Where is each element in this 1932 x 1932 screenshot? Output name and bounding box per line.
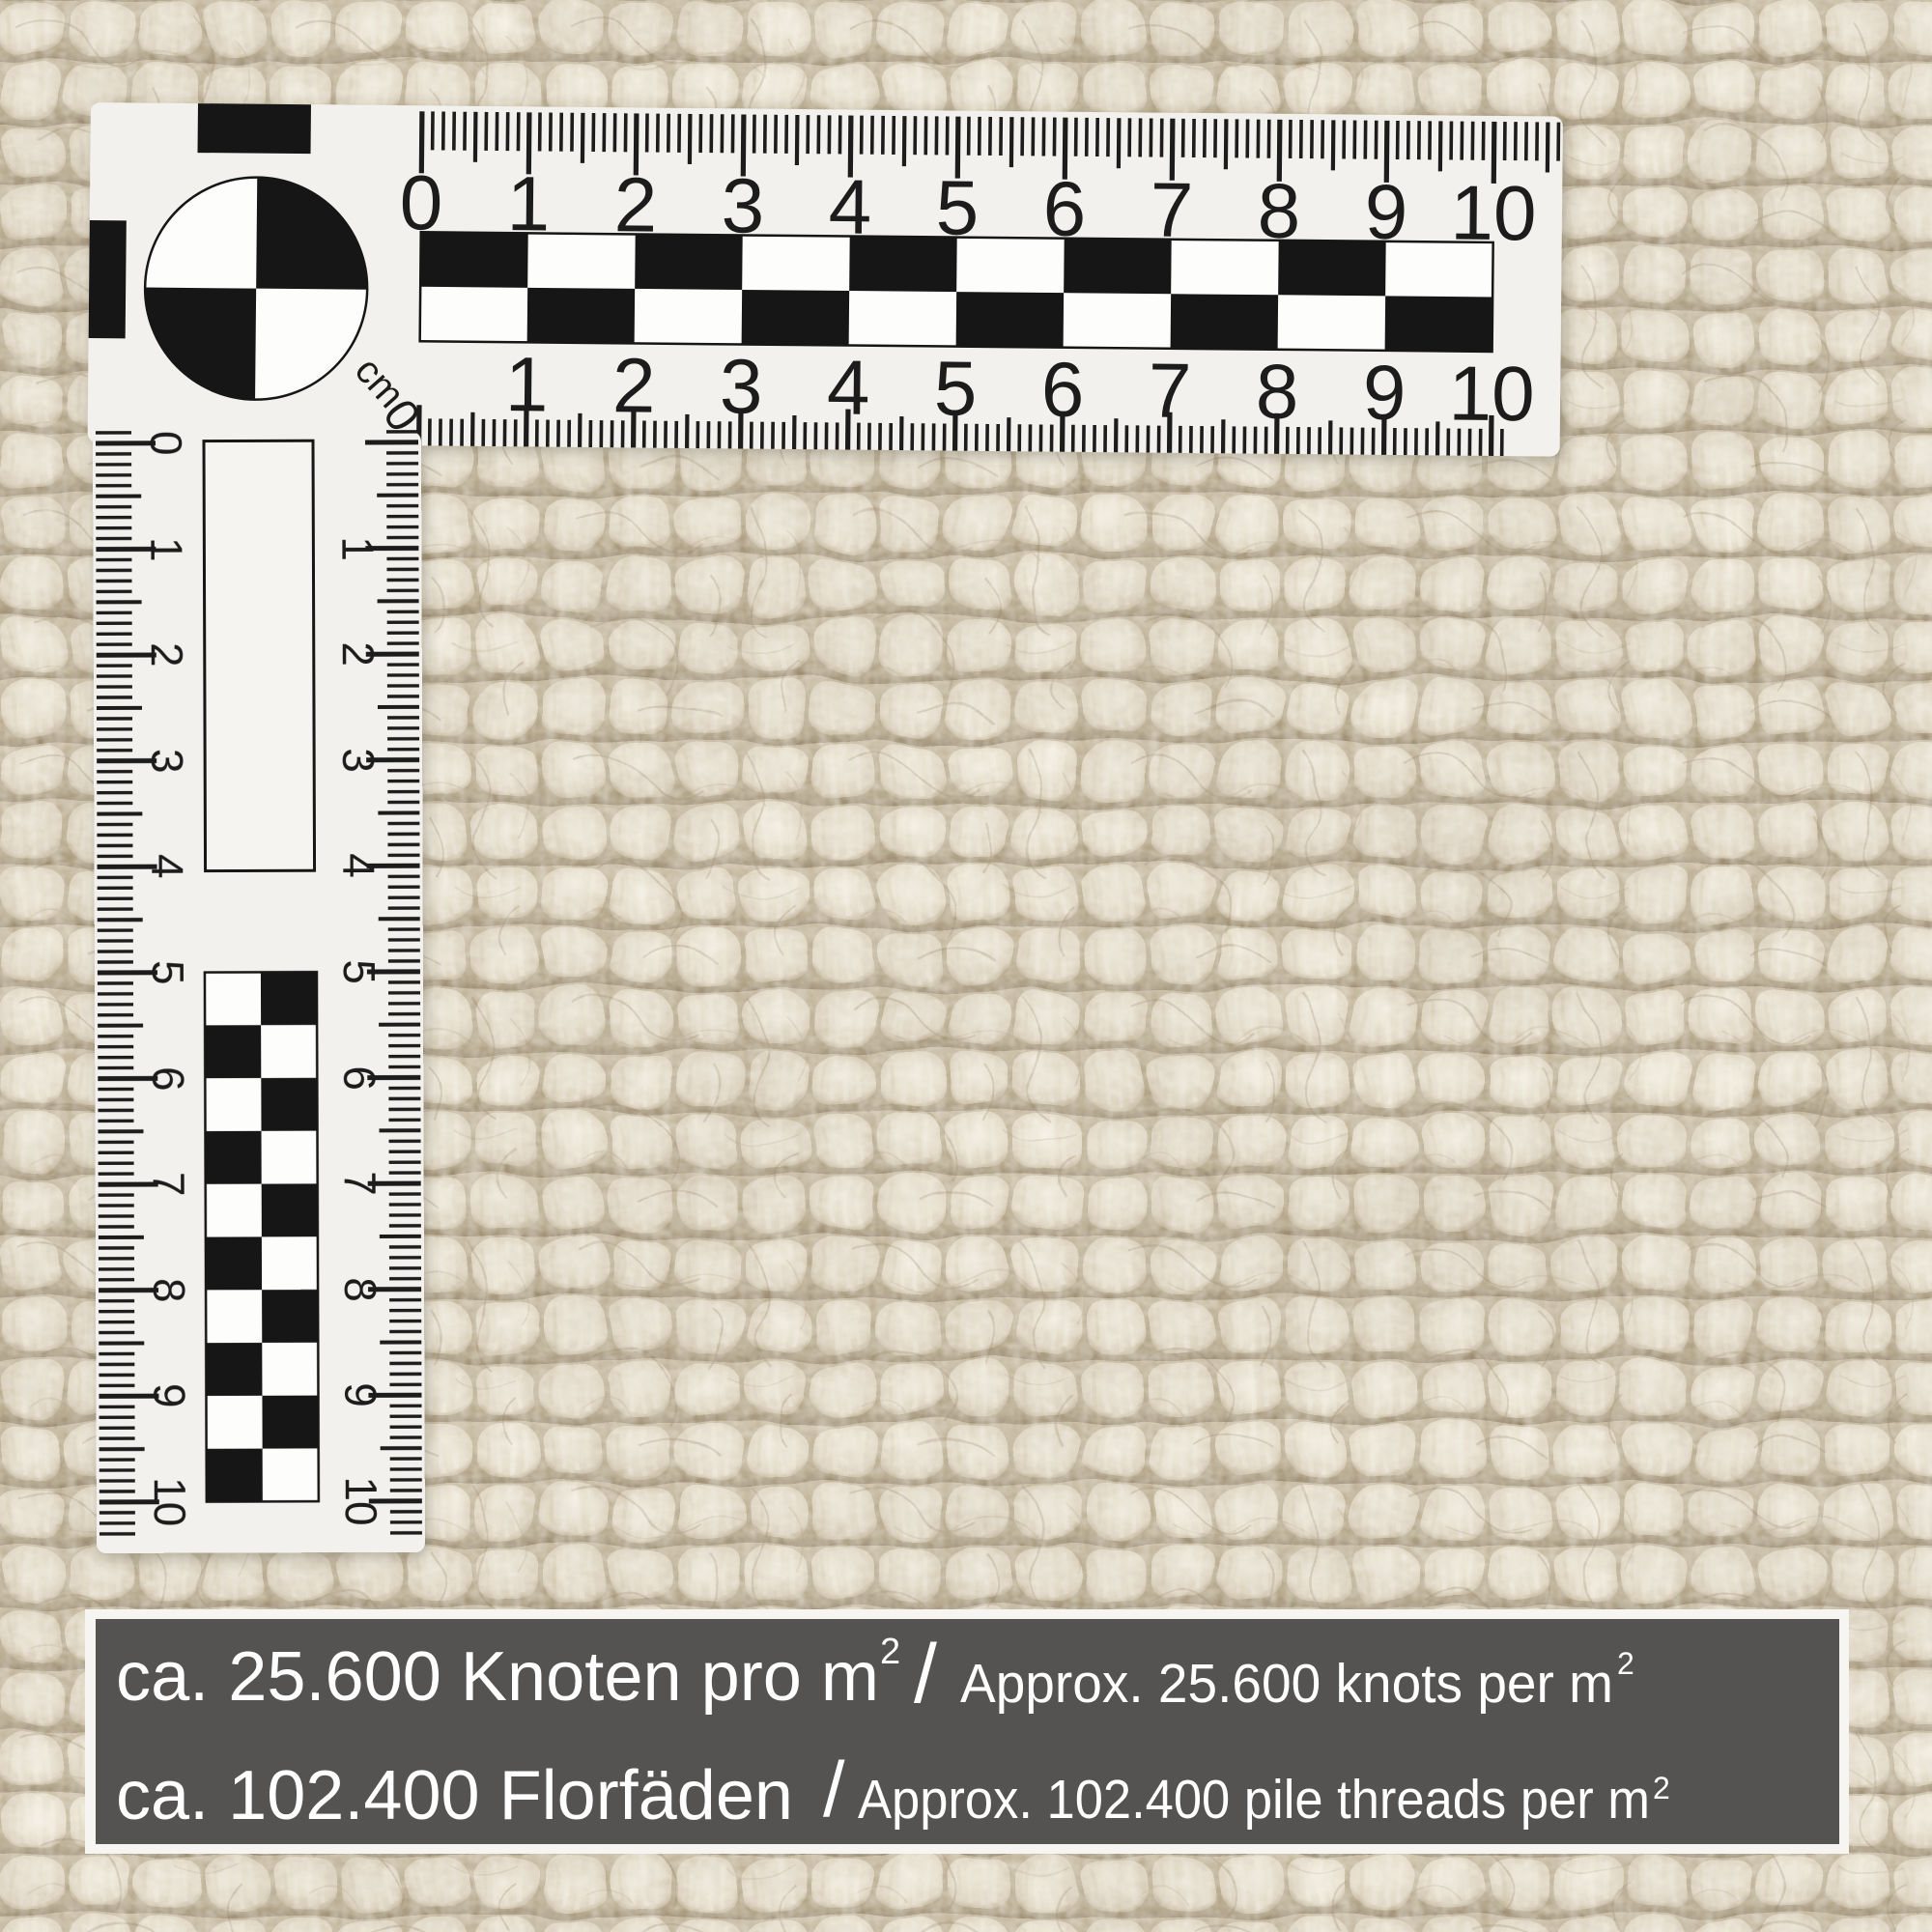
svg-text:10: 10 <box>145 1477 195 1526</box>
svg-text:2: 2 <box>142 642 192 668</box>
svg-text:2: 2 <box>1653 1771 1670 1805</box>
svg-text:Approx. 102.400 pile threads p: Approx. 102.400 pile threads per m <box>858 1769 1650 1831</box>
svg-text:ca. 102.400 Florfäden: ca. 102.400 Florfäden <box>116 1757 793 1834</box>
svg-text:7: 7 <box>144 1172 194 1197</box>
svg-text:Approx. 25.600 knots per m: Approx. 25.600 knots per m <box>960 1653 1613 1715</box>
svg-text:6: 6 <box>143 1066 193 1092</box>
svg-text:5: 5 <box>143 960 193 985</box>
svg-text:1: 1 <box>141 537 191 562</box>
svg-text:2: 2 <box>1617 1646 1634 1681</box>
svg-text:0: 0 <box>141 431 191 456</box>
svg-text:3: 3 <box>142 749 192 774</box>
svg-text:ca. 25.600 Knoten pro m: ca. 25.600 Knoten pro m <box>116 1638 879 1716</box>
svg-text:4: 4 <box>142 854 192 879</box>
svg-text:/: / <box>823 1747 845 1833</box>
svg-text:2: 2 <box>880 1632 900 1672</box>
svg-text:/: / <box>914 1628 937 1720</box>
svg-text:9: 9 <box>144 1383 194 1408</box>
svg-text:8: 8 <box>144 1278 194 1303</box>
